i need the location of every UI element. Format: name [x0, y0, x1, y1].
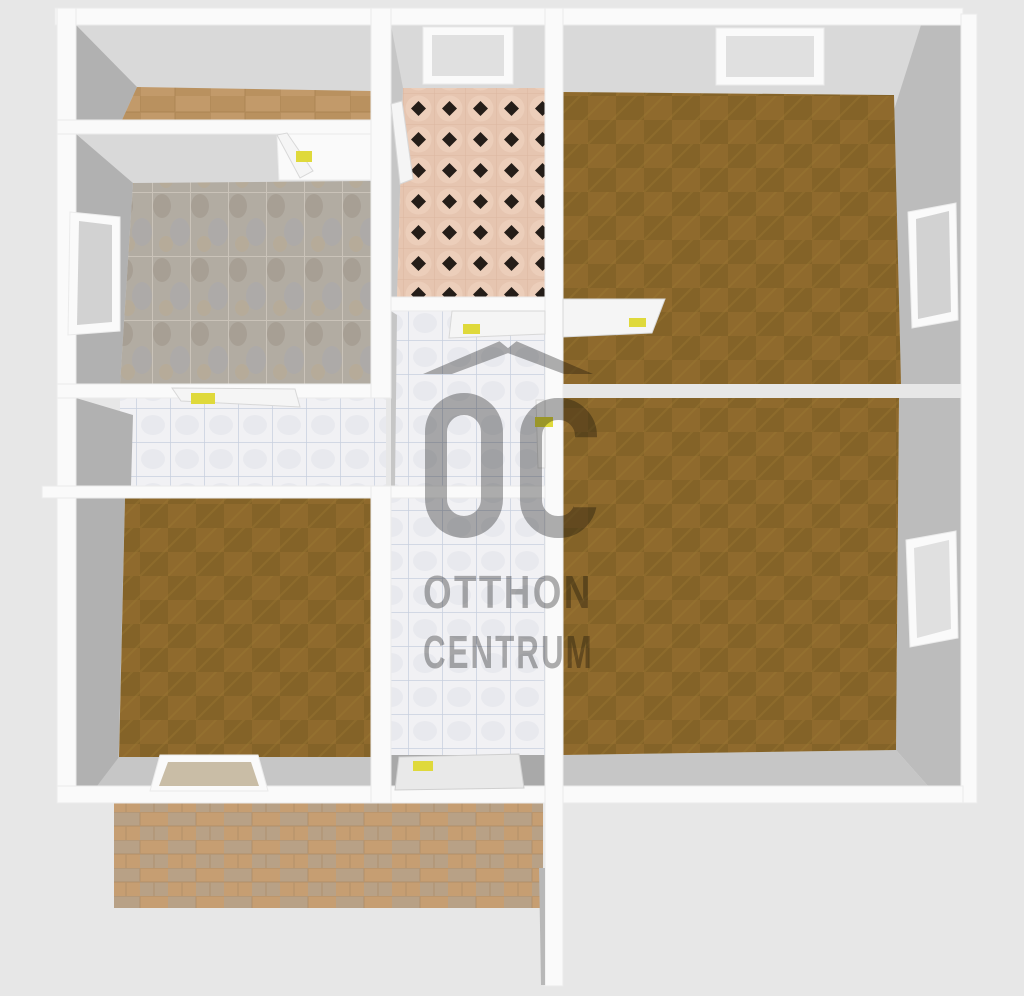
entrance-door-leaf: [395, 754, 524, 790]
hallway-lower-floor: [391, 498, 545, 755]
floor-plan-graphic: [0, 0, 1024, 996]
wall-center-left-lower: [371, 486, 391, 803]
room-bottom-right-door-leaf: [536, 400, 545, 468]
room-bottom-left-west-wall-face: [76, 498, 125, 786]
hallway-center-lower: [391, 498, 545, 786]
room-bottom-left-floor: [119, 498, 371, 757]
hallway-west-arm: [76, 398, 386, 486]
room-bottom-right-east-window-glass: [914, 540, 951, 638]
room-bottom-left: [76, 498, 371, 786]
wall-bathroom-south: [378, 297, 563, 311]
hallway-upper-door-handle: [463, 324, 480, 334]
kitchen-floor: [120, 181, 371, 384]
room-top-right-floor: [563, 92, 901, 384]
wall-east-outer: [961, 14, 977, 803]
bathroom-window-glass: [432, 35, 504, 76]
wall-center-left-upper: [371, 8, 391, 398]
hallway-west-floor: [120, 398, 386, 486]
floor-plan-render: OC OTTHON CENTRUM: [0, 0, 1024, 996]
entrance-door-handle: [413, 761, 433, 771]
room-top-left-floor: [122, 87, 371, 120]
room-top-left: [76, 25, 371, 120]
room-bottom-right-floor: [563, 398, 899, 755]
room-bottom-right-door-handle: [535, 417, 553, 427]
terrace-floor: [114, 803, 543, 908]
room-bottom-right-south-wall-face: [563, 750, 928, 786]
room-bottom-left-south-window-glass: [159, 762, 259, 786]
wall-north-outer: [55, 8, 963, 25]
room-bottom-right: [563, 398, 961, 786]
room-top-right-north-window-glass: [726, 36, 814, 77]
room-top-right-east-window-glass: [916, 211, 951, 319]
wall-hall-bottomrooms: [42, 486, 560, 498]
wall-center-right-long: [545, 8, 563, 986]
room-top-right-door-handle: [629, 318, 646, 327]
room-top-right-door-leaf: [563, 299, 665, 337]
hallway-west-door-handle: [191, 393, 215, 404]
kitchen-door-handle: [296, 151, 312, 162]
bathroom-floor: [397, 88, 545, 297]
wall-topleft-kitchen: [57, 120, 387, 134]
kitchen-window-glass: [77, 221, 112, 325]
